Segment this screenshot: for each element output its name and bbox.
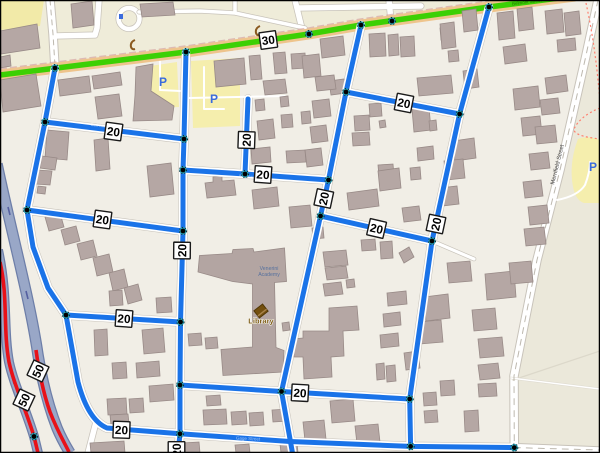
svg-text:20: 20 — [106, 124, 121, 140]
svg-text:Library: Library — [248, 317, 274, 326]
svg-text:20: 20 — [293, 386, 307, 401]
svg-text:20: 20 — [256, 167, 271, 182]
svg-text:P: P — [589, 160, 597, 174]
svg-text:P: P — [210, 92, 218, 106]
svg-text:P: P — [159, 75, 167, 89]
svg-text:20: 20 — [117, 311, 132, 326]
svg-text:20: 20 — [95, 212, 110, 228]
svg-text:20: 20 — [115, 423, 129, 437]
svg-text:30: 30 — [261, 32, 276, 48]
svg-text:20: 20 — [170, 443, 184, 453]
svg-text:Academy: Academy — [258, 272, 280, 278]
svg-text:20: 20 — [240, 133, 254, 147]
svg-text:20: 20 — [175, 243, 189, 257]
